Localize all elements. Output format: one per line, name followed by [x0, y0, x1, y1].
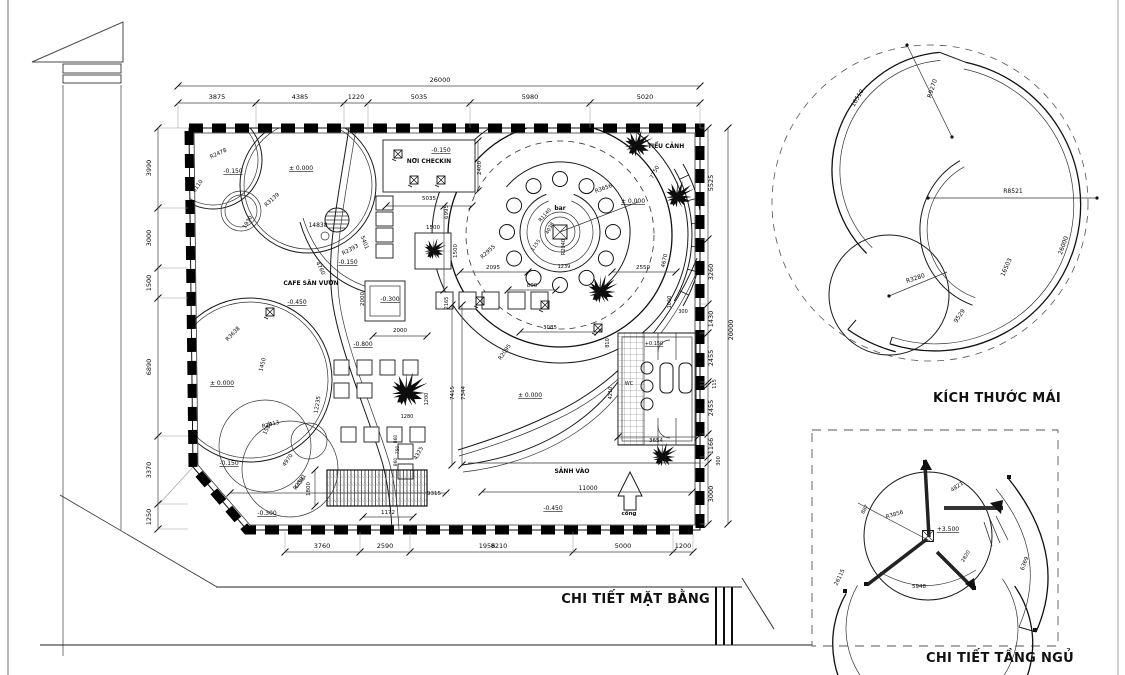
bar-stool [553, 172, 568, 187]
bar-stool [526, 179, 541, 194]
dim-label: 115 [712, 379, 718, 389]
dim-label: 16503 [1000, 257, 1014, 277]
dim-label: 2455 [707, 350, 715, 367]
dim-label: R3638 [225, 325, 242, 342]
dim-label: R2393 [341, 243, 360, 257]
dim-label: -0.300 [257, 510, 277, 517]
dim-label: -0.150 [219, 460, 239, 467]
dim-label: 2095 [486, 265, 500, 271]
table-square [380, 360, 395, 375]
dim-label: R2955 [480, 244, 498, 261]
dim-label: 860 [393, 458, 399, 467]
dim-label: ± 0.000 [621, 198, 645, 205]
dim-label: 5035 [411, 93, 428, 101]
dim-label: -0.450 [287, 299, 307, 306]
table-square [334, 360, 349, 375]
dim-label: ± 0.000 [289, 165, 313, 172]
wc-block [618, 333, 696, 445]
dim-label: 1060 [667, 296, 673, 309]
dim-label: 800 [527, 283, 538, 289]
dim-label: 2590 [377, 542, 394, 550]
dim-label: 4210 [608, 387, 614, 400]
dim-label: 3654 [649, 438, 663, 444]
room-label: SẢNH VÀO [554, 467, 589, 475]
dim-label: 6995 [444, 205, 450, 219]
dim-label: 2400 [477, 161, 483, 175]
bedroom-title: CHI TIẾT TẦNG NGỦ [926, 651, 1074, 666]
tree-icon [392, 372, 428, 406]
dim-label: 3875 [209, 93, 226, 101]
dim-label: R3280 [905, 272, 926, 285]
bar-stool [579, 179, 594, 194]
dim-label: 9529 [953, 308, 968, 325]
dim-label: 2550 [636, 265, 650, 271]
dim-label: 300 [678, 309, 688, 315]
table-square [531, 292, 548, 309]
dim-label: 1200 [675, 542, 692, 550]
bedroom-detail [812, 430, 1058, 675]
left-column-section [32, 22, 123, 656]
dim-label: +0.150 [645, 341, 664, 347]
dim-label: ± 0.000 [518, 392, 542, 399]
room-label: NƠI CHECKIN [407, 158, 451, 165]
dim-label: -0.150 [338, 259, 358, 266]
dim-label: 4325 [413, 446, 425, 462]
dim-label: 1500 [145, 275, 153, 292]
dim-label: 7415 [450, 386, 456, 400]
dim-label: 7344 [461, 386, 467, 400]
dim-label: 1450 [258, 357, 268, 373]
dim-label: R2040 [561, 239, 567, 255]
dim-label: -0.450 [543, 505, 563, 512]
dim-label: 9315 [427, 491, 441, 497]
table-square [482, 292, 499, 309]
dim-label: 7750 [649, 165, 661, 181]
table-square [341, 427, 356, 442]
dim-label: 4038 [544, 222, 555, 236]
table-square [403, 360, 418, 375]
bedroom-stair-fan [984, 516, 1008, 546]
dim-label: 3990 [145, 160, 153, 177]
dim-label: 20000 [727, 320, 735, 341]
bar-stool [507, 198, 522, 213]
cad-canvas: 2600038754385122050355980502039903000150… [0, 0, 1125, 675]
dim-label: -0.150 [223, 168, 243, 175]
dim-label: 6890 [145, 359, 153, 376]
dim-label: 4821 [950, 481, 965, 494]
drawing-sheet: 2600038754385122050355980502039903000150… [0, 0, 1125, 675]
bar-stool [598, 198, 613, 213]
dim-label: R3656 [594, 183, 613, 195]
dim-label: 11000 [578, 485, 597, 492]
table-square [376, 212, 393, 226]
dim-label: +3.500 [937, 526, 959, 533]
dim-label: ± 0.000 [210, 380, 234, 387]
roof-radius-lines [889, 45, 1097, 296]
dim-label: 6369 [1020, 556, 1031, 572]
table-square [334, 383, 349, 398]
table-square [508, 292, 525, 309]
dim-label: 1500 [453, 244, 459, 258]
room-label: cổng [622, 510, 637, 517]
table-square [459, 292, 476, 309]
sheet-border [8, 0, 1118, 675]
dim-label: 5035 [422, 196, 436, 202]
dim-label: 1280 [401, 414, 414, 420]
room-label: bar [554, 205, 565, 212]
tree-icon [666, 181, 694, 208]
dim-label: 5980 [522, 93, 539, 101]
dim-label: WC [625, 381, 634, 387]
dim-label: 8210 [491, 542, 508, 550]
dim-label: 1166 [707, 438, 715, 455]
dim-label: 14838 [308, 222, 327, 229]
dim-label: 3085 [543, 325, 557, 331]
dim-label: 1800 [306, 482, 312, 496]
table-square [364, 427, 379, 442]
chair-glyph-icon [264, 308, 274, 319]
dim-label: R2095 [498, 343, 513, 361]
bar-stool [507, 251, 522, 266]
dim-label: 2455 [707, 400, 715, 417]
annotations: 2600038754385122050355980502039903000150… [145, 76, 1070, 590]
dim-label: 3370 [145, 462, 153, 479]
table-square [376, 228, 393, 242]
room-label: TIỂU CẢNH [648, 142, 684, 150]
dim-label: 1155 [530, 238, 542, 252]
stair-markers [843, 459, 1037, 632]
dim-label: 1500 [426, 225, 440, 231]
bar-stool [500, 225, 515, 240]
dim-label: 2820 [960, 549, 972, 563]
dim-label: 16510 [850, 88, 866, 108]
dim-label: R9270 [926, 78, 939, 99]
dim-label: 3000 [145, 230, 153, 247]
bar-stool [598, 251, 613, 266]
plan-title: CHI TIẾT MẶT BẰNG [561, 592, 710, 607]
dim-label: 2000 [360, 292, 366, 306]
dim-label: R3139 [264, 192, 282, 209]
table-square [410, 427, 425, 442]
dim-label: 860 [393, 435, 399, 444]
dim-label: 300 [716, 456, 722, 466]
table-square [376, 244, 393, 258]
table-square [357, 360, 372, 375]
dim-label: 1200 [424, 393, 430, 406]
dim-label: 5000 [615, 542, 632, 550]
dim-label: 26000 [1057, 235, 1070, 256]
dim-label: 810 [605, 338, 611, 348]
dim-label: 5401 [359, 235, 369, 250]
dim-label: 4760 [314, 261, 326, 277]
dim-label: R1140 [538, 207, 553, 223]
dim-label: 5020 [637, 93, 654, 101]
table-square [357, 383, 372, 398]
dim-label: 4385 [292, 93, 309, 101]
dim-label: 3760 [314, 542, 331, 550]
entrance-arrow-icon [618, 472, 642, 510]
dim-label: 750 [395, 446, 401, 455]
dim-label: 26115 [834, 568, 847, 587]
dim-label: -0.800 [353, 341, 373, 348]
dim-label: 3000 [707, 486, 715, 503]
dim-label: 3260 [707, 264, 715, 281]
bar-stool [606, 225, 621, 240]
bar-stool [579, 270, 594, 285]
dim-label: 1250 [145, 509, 153, 526]
dim-label: 1172 [381, 510, 395, 516]
dim-label: R2478 [209, 147, 228, 160]
dim-label: 1239 [558, 264, 571, 270]
dim-label: 1430 [707, 311, 715, 328]
dim-label: 5948 [912, 584, 926, 590]
dim-label: 2165 [444, 297, 450, 310]
stair-step [680, 175, 689, 179]
dim-label: R3856 [885, 510, 904, 521]
dim-label: 5525 [707, 175, 715, 192]
roof-title: KÍCH THƯỚC MÁI [933, 391, 1061, 406]
checkin-box [383, 140, 475, 192]
room-label: CAFE SÂN VƯỜN [283, 280, 338, 287]
dim-label: R8521 [1003, 188, 1023, 195]
wood-deck [327, 470, 427, 506]
dim-label: 26000 [430, 76, 451, 84]
dim-label: -0.300 [380, 296, 400, 303]
dim-label: -0.150 [431, 147, 451, 154]
dim-label: 1220 [348, 93, 365, 101]
dim-label: 2000 [393, 328, 407, 334]
